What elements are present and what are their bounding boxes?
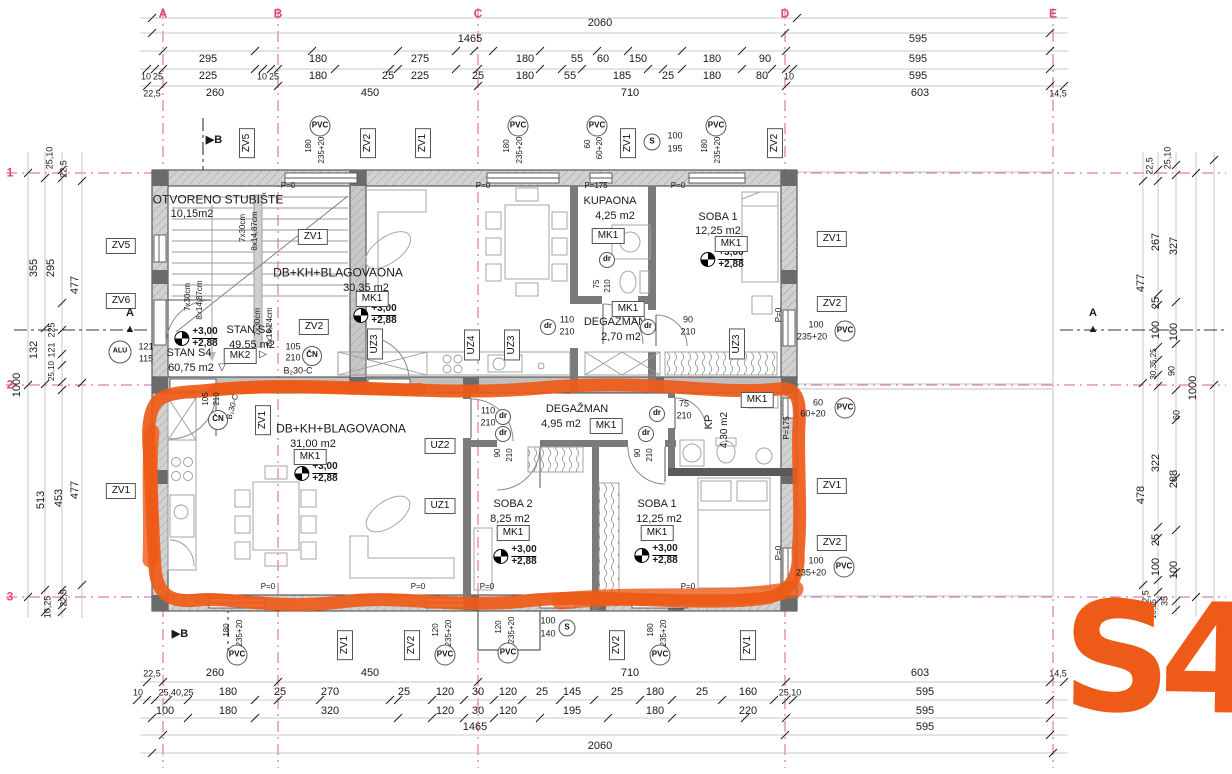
label: ▲ [125,324,136,336]
10-15m2: 10,15m2 [171,209,214,221]
tag-mk1: MK1 [356,291,389,307]
level-icon [700,252,715,267]
132: 132 [29,341,41,359]
p-0: P=0 [681,583,695,591]
180: 180 [646,706,664,718]
513: 513 [36,491,48,509]
477: 477 [70,276,82,294]
pvc-window-tag: PVC [834,557,855,578]
267: 267 [1151,233,1163,251]
115: 115 [139,354,153,363]
7x30cm: 7x30cm [254,308,262,336]
pvc-window-tag: PVC [587,116,608,137]
100: 100 [540,616,555,625]
s-tag: S [644,134,661,151]
60+20: 60+20 [596,137,604,159]
10: 10 [784,72,794,81]
22-5: 22,5 [143,669,161,678]
p-175: P=175 [783,416,791,439]
60-75-m2: 60,75 m2 [168,363,214,375]
level-icon [493,549,508,564]
25: 25 [536,687,548,699]
105: 105 [202,392,210,405]
90: 90 [634,449,642,458]
tag-zv1: ZV1 [106,483,136,499]
pvc-window-tag: PVC [508,116,529,137]
235+20: 235+20 [660,620,668,647]
1000: 1000 [1188,376,1200,400]
710: 710 [621,88,639,100]
tag-mk1: MK1 [592,228,625,244]
110: 110 [481,406,495,415]
235+20: 235+20 [318,137,326,164]
225: 225 [47,322,56,337]
210: 210 [480,418,495,427]
25: 25 [1151,297,1163,309]
320: 320 [321,706,339,718]
7x30cm: 7x30cm [184,283,192,311]
100: 100 [1151,321,1163,339]
180: 180 [503,139,511,152]
90: 90 [1167,366,1176,376]
tag-zv2: ZV2 [767,128,783,158]
210: 210 [285,353,300,362]
10: 10 [257,72,267,81]
tag-uz2: UZ2 [425,438,456,454]
25: 25 [696,687,708,699]
75: 75 [593,280,601,289]
tag-uz4: UZ4 [464,330,480,361]
level-marker: +3,00+2,88 [174,327,217,349]
tag-zv2: ZV2 [609,630,625,660]
dr-tag: dr [540,319,556,335]
apartment-stamp-s4: S4 [1060,567,1232,770]
p-0: P=0 [671,182,685,190]
235+20: 235+20 [714,137,722,164]
120: 120 [436,687,454,699]
1465: 1465 [463,722,487,734]
60: 60 [813,398,823,407]
595: 595 [909,34,927,46]
180: 180 [516,71,534,83]
60: 60 [1172,410,1181,420]
185: 185 [613,71,631,83]
120: 120 [495,620,503,633]
pvc-window-tag: PVC [835,398,856,419]
120: 120 [499,687,517,699]
label: ▽ [218,363,226,374]
tag-zv2: ZV2 [299,319,329,335]
p-175: P=175 [584,182,607,190]
30-35-25: 30,35,25 [1150,348,1158,379]
pvc-window-tag: PVC [835,321,856,342]
4-30-m2: 4,30 m2 [720,412,731,448]
100: 100 [667,131,682,140]
room-kupaona: KUPAONA [584,196,637,208]
level-icon [294,466,309,481]
room-otvoreno-stubiste: OTVORENO STUBIŠTE [153,194,284,207]
90: 90 [494,449,502,458]
180: 180 [305,139,313,152]
pvc-window-tag: PVC [498,643,519,664]
section-marker-a-left: A [126,308,134,320]
2060: 2060 [588,741,612,753]
295: 295 [199,54,217,66]
tag-zv1: ZV1 [817,231,847,247]
tag-mk1: MK1 [741,392,774,408]
180: 180 [223,623,231,636]
150: 150 [629,54,647,66]
25-10: 25,10 [48,361,56,381]
p-0: P=0 [480,583,494,591]
90: 90 [683,315,693,324]
180: 180 [219,706,237,718]
235+20: 235+20 [796,568,826,577]
180: 180 [219,687,237,699]
tag-mk1: MK1 [715,236,748,252]
grid-axis-3: 3 [7,591,14,604]
120: 120 [499,706,517,718]
tag-zv1: ZV1 [817,478,847,494]
100: 100 [1169,323,1181,341]
210: 210 [213,392,221,405]
14-5: 14,5 [1049,89,1067,98]
tag-zv1: ZV1 [298,229,328,245]
180: 180 [647,623,655,636]
195: 195 [563,706,581,718]
tag-zv1: ZV1 [740,630,756,660]
453: 453 [54,489,66,507]
tag-zv1: ZV1 [415,128,431,158]
25-10: 25,10 [45,147,54,170]
dr-tag: dr [599,252,615,268]
tag-mk1: MK1 [641,525,674,541]
225: 225 [411,71,429,83]
tag-mk2: MK2 [224,348,257,364]
alu-door-tag: ALU [109,341,132,364]
room-degazman-lower: DEGAŽMAN [546,404,608,416]
4-95-m2: 4,95 m2 [541,419,581,431]
30: 30 [472,706,484,718]
355: 355 [29,259,41,277]
180: 180 [703,54,721,66]
label: ▷ [259,350,267,361]
25: 25 [153,72,163,81]
235+20: 235+20 [516,137,524,164]
25: 25 [1151,534,1163,546]
10: 10 [141,72,151,81]
288: 288 [1169,470,1181,488]
cn-door-tag: ČN [302,346,322,366]
22-5: 22,5 [59,160,68,178]
p-0: P=0 [261,583,275,591]
label: ▲ [1088,324,1099,336]
8x18-24cm: 8x18,24cm [266,307,274,346]
dr-tag: dr [638,426,654,442]
room-db-kh-blagovaona-upper: DB+KH+BLAGOVAONA [273,267,403,280]
120: 120 [432,623,440,636]
110: 110 [560,315,574,324]
105: 105 [285,342,300,351]
2-70-m2: 2,70 m2 [601,332,641,344]
327: 327 [1169,237,1181,255]
25: 25 [274,687,286,699]
295: 295 [46,259,58,277]
1000: 1000 [12,373,24,397]
level-marker: +3,00+2,88 [634,544,677,566]
60+20: 60+20 [800,409,825,418]
b-30-c: B₂30-C [226,393,241,420]
55: 55 [564,71,576,83]
1465: 1465 [458,34,482,46]
room-degazman-upper: DEGAŽMAN [584,317,646,329]
room-kp: KP [704,415,716,430]
121: 121 [138,342,153,351]
235+20: 235+20 [236,620,244,647]
7x30cm: 7x30cm [239,214,247,242]
60: 60 [597,54,609,66]
s-tag: S [559,620,576,637]
260: 260 [206,668,224,680]
180: 180 [309,54,327,66]
55: 55 [571,54,583,66]
60: 60 [584,140,592,149]
grid-axis-b: B [274,8,283,21]
603: 603 [911,668,929,680]
4-25-m2: 4,25 m2 [595,211,635,223]
10-25: 10,25 [43,596,52,619]
8x14-87cm: 8x14,87cm [251,211,259,250]
210: 210 [559,327,574,336]
322: 322 [1151,454,1163,472]
8x14-87cm: 8x14,87cm [196,280,204,319]
tag-zv5: ZV5 [239,128,255,158]
180: 180 [309,71,327,83]
710: 710 [621,668,639,680]
dr-tag: dr [649,406,665,422]
pvc-window-tag: PVC [227,645,248,666]
label-stan-s4: STAN S4 [166,348,211,360]
220: 220 [739,706,757,718]
annotation-layer: ABCDE12320601465595295180275180556015018… [0,0,1232,774]
100: 100 [808,320,823,329]
100: 100 [808,556,823,565]
grid-axis-d: D [781,8,790,21]
210: 210 [506,448,514,461]
160: 160 [739,687,757,699]
235+20: 235+20 [508,617,516,644]
tag-zv2: ZV2 [817,535,847,551]
grid-axis-a: A [159,8,168,21]
room-soba1-upper: SOBA 1 [698,212,737,224]
180: 180 [516,54,534,66]
b-30-c: B₂30-C [283,366,312,375]
2060: 2060 [588,18,612,30]
477: 477 [1136,274,1148,292]
235+20: 235+20 [797,332,827,341]
pvc-window-tag: PVC [650,645,671,666]
210: 210 [676,411,691,420]
25: 25 [611,687,623,699]
tag-mk1: MK1 [294,449,327,465]
tag-zv5: ZV5 [106,238,136,254]
level-icon [174,331,189,346]
section-marker-b-top: ▶B [206,135,222,147]
tag-zv2: ZV2 [817,296,847,312]
tag-uz3: UZ3 [729,329,745,360]
210: 210 [646,448,654,461]
section-marker-a-right: A [1089,308,1097,320]
level-marker: +3,00+2,88 [294,462,337,484]
level-icon [353,308,368,323]
tag-mk1: MK1 [612,301,645,317]
tag-zv1: ZV1 [255,405,271,435]
275: 275 [411,54,429,66]
225: 225 [199,71,217,83]
22-5: 22,5 [143,89,161,98]
75: 75 [679,399,689,408]
25: 25 [472,71,484,83]
25: 25 [269,72,279,81]
pvc-window-tag: PVC [706,116,727,137]
121: 121 [47,342,56,357]
260: 260 [206,88,224,100]
10: 10 [133,688,143,697]
210: 210 [680,327,695,336]
180: 180 [646,687,664,699]
180: 180 [701,139,709,152]
30: 30 [472,687,484,699]
25: 25 [662,71,674,83]
room-db-kh-blagovaona-lower: DB+KH+BLAGOVAONA [276,423,406,436]
p-0: P=0 [411,583,425,591]
210: 210 [604,279,612,292]
tag-uz3: UZ3 [504,330,520,361]
100: 100 [156,706,174,718]
level-icon [634,548,649,563]
tag-mk1: MK1 [497,525,530,541]
25-10: 25,10 [779,688,802,697]
595: 595 [909,54,927,66]
450: 450 [361,668,379,680]
tag-zv1: ZV1 [337,630,353,660]
tag-uz1: UZ1 [425,498,456,514]
270: 270 [321,687,339,699]
grid-axis-e: E [1049,8,1057,21]
180: 180 [703,71,721,83]
room-soba2: SOBA 2 [493,499,532,511]
pvc-window-tag: PVC [435,645,456,666]
tag-zv1: ZV1 [620,128,636,158]
25: 25 [398,687,410,699]
tag-zv2: ZV2 [360,128,376,158]
595: 595 [916,722,934,734]
dr-tag: dr [495,409,511,425]
450: 450 [361,88,379,100]
22-5: 22,5 [1145,157,1154,175]
pvc-window-tag: PVC [310,116,331,137]
235+20: 235+20 [445,620,453,647]
25-10: 25,10 [1163,147,1172,170]
90: 90 [759,54,771,66]
140: 140 [540,629,555,638]
level-marker: +3,00+2,88 [353,304,396,326]
477: 477 [70,481,82,499]
room-soba1-lower: SOBA 1 [637,499,676,511]
section-marker-b-bottom: ▶B [172,629,188,641]
603: 603 [911,88,929,100]
595: 595 [916,706,934,718]
195: 195 [667,144,682,153]
level-marker: +3,00+2,88 [493,545,536,567]
tag-mk1: MK1 [590,418,623,434]
145: 145 [563,687,581,699]
tag-uz3: UZ3 [367,329,383,360]
25: 25 [382,71,394,83]
595: 595 [909,71,927,83]
22-5: 22,5 [59,589,68,607]
floor-plan-s4: ABCDE12320601465595295180275180556015018… [0,0,1232,774]
p-0: P=0 [476,182,490,190]
p-0: P=0 [775,546,783,560]
80: 80 [756,71,768,83]
dr-tag: dr [495,426,511,442]
tag-zv2: ZV2 [404,630,420,660]
120: 120 [436,706,454,718]
478: 478 [1136,486,1148,504]
p-0: P=0 [775,308,783,322]
grid-axis-c: C [474,8,483,21]
25-40-25: 25,40,25 [158,688,193,697]
595: 595 [916,687,934,699]
p-0: P=0 [281,182,295,190]
grid-axis-1: 1 [7,167,14,180]
dr-tag: dr [640,319,656,335]
